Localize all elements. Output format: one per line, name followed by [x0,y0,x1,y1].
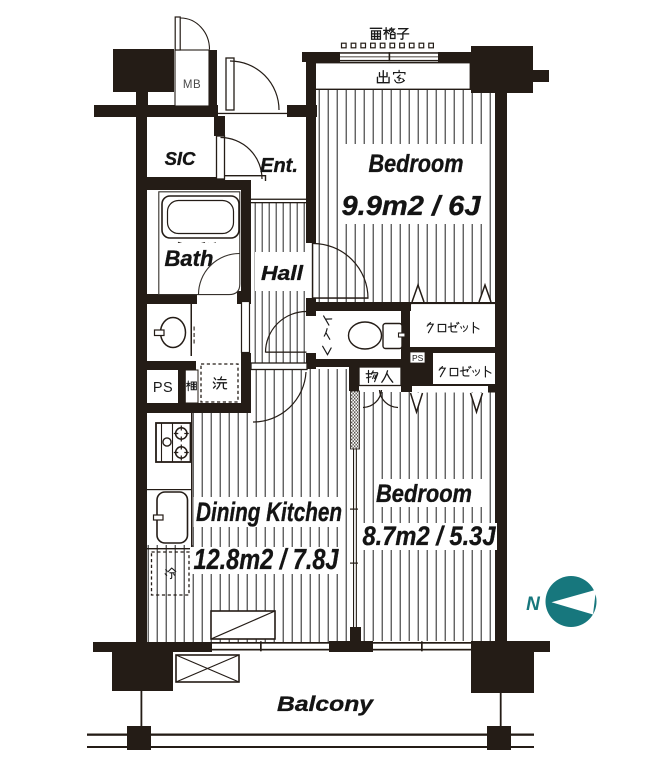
svg-text:Balcony: Balcony [277,692,374,716]
svg-text:N: N [526,594,541,615]
svg-text:PS: PS [412,353,424,363]
svg-text:9.9m2 / 6J: 9.9m2 / 6J [342,190,482,221]
svg-text:Bedroom: Bedroom [369,150,464,178]
svg-text:Ent.: Ent. [260,155,298,177]
svg-text:PS: PS [153,380,173,396]
svg-text:Dining Kitchen: Dining Kitchen [196,497,342,527]
svg-text:Bedroom: Bedroom [376,480,472,508]
svg-text:8.7m2 / 5.3J: 8.7m2 / 5.3J [363,521,497,551]
svg-text:12.8m2 / 7.8J: 12.8m2 / 7.8J [194,544,340,576]
svg-text:Bath: Bath [165,246,214,271]
svg-text:MB: MB [183,79,201,91]
svg-text:SIC: SIC [165,148,196,169]
svg-text:Hall: Hall [261,263,303,285]
